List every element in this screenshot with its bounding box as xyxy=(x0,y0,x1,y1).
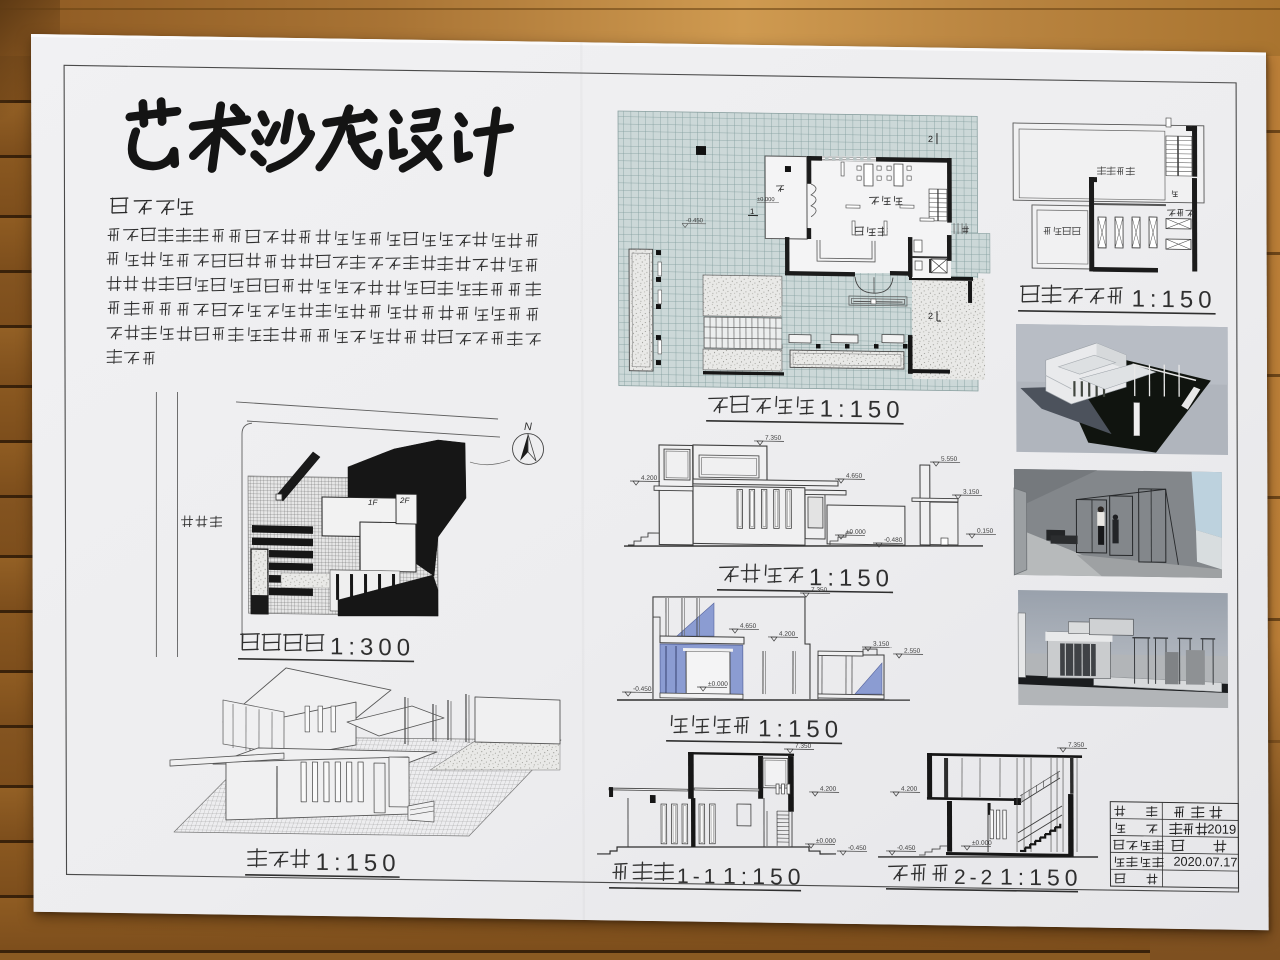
svg-text:±0.000: ±0.000 xyxy=(972,840,992,847)
svg-text:3.150: 3.150 xyxy=(873,641,890,648)
svg-text:4.650: 4.650 xyxy=(740,623,757,630)
svg-text:1:150: 1:150 xyxy=(1132,286,1217,314)
svg-text:7.350: 7.350 xyxy=(1068,742,1085,749)
svg-text:7.350: 7.350 xyxy=(795,743,812,750)
svg-text:±0.000: ±0.000 xyxy=(846,529,866,536)
svg-text:-0.450: -0.450 xyxy=(848,845,867,852)
svg-text:4.200: 4.200 xyxy=(901,786,918,793)
svg-text:4.200: 4.200 xyxy=(779,631,796,638)
svg-text:2: 2 xyxy=(928,134,933,144)
svg-text:1:150: 1:150 xyxy=(758,715,843,743)
svg-text:1:150: 1:150 xyxy=(316,849,401,877)
svg-text:7.350: 7.350 xyxy=(811,587,828,594)
svg-text:2.550: 2.550 xyxy=(904,648,921,655)
svg-text:-0.480: -0.480 xyxy=(884,537,903,544)
svg-text:7.350: 7.350 xyxy=(765,435,782,442)
svg-text:-0.450: -0.450 xyxy=(897,845,916,852)
svg-text:4.200: 4.200 xyxy=(820,786,837,793)
svg-text:1:150: 1:150 xyxy=(1000,864,1083,891)
svg-text:-0.450: -0.450 xyxy=(633,686,652,693)
svg-text:2: 2 xyxy=(928,311,933,321)
svg-text:5.550: 5.550 xyxy=(941,456,958,463)
svg-text:2019: 2019 xyxy=(1207,821,1236,836)
svg-text:0.150: 0.150 xyxy=(977,528,994,535)
svg-text:±0.000: ±0.000 xyxy=(708,681,728,688)
svg-text:4.200: 4.200 xyxy=(641,475,658,482)
svg-text:1:150: 1:150 xyxy=(820,396,905,424)
svg-text:2F: 2F xyxy=(399,496,410,505)
svg-text:1:300: 1:300 xyxy=(330,633,415,661)
svg-text:±0.000: ±0.000 xyxy=(816,838,836,845)
svg-text:1-1: 1-1 xyxy=(677,865,719,889)
svg-text:1: 1 xyxy=(750,207,755,216)
svg-text:4.650: 4.650 xyxy=(846,473,863,480)
svg-text:3.150: 3.150 xyxy=(963,489,980,496)
svg-text:2-2: 2-2 xyxy=(954,866,996,890)
svg-text:1:150: 1:150 xyxy=(723,863,806,890)
svg-text:1F: 1F xyxy=(368,498,378,507)
svg-text:N: N xyxy=(524,421,532,433)
svg-text:2020.07.17: 2020.07.17 xyxy=(1173,854,1237,870)
